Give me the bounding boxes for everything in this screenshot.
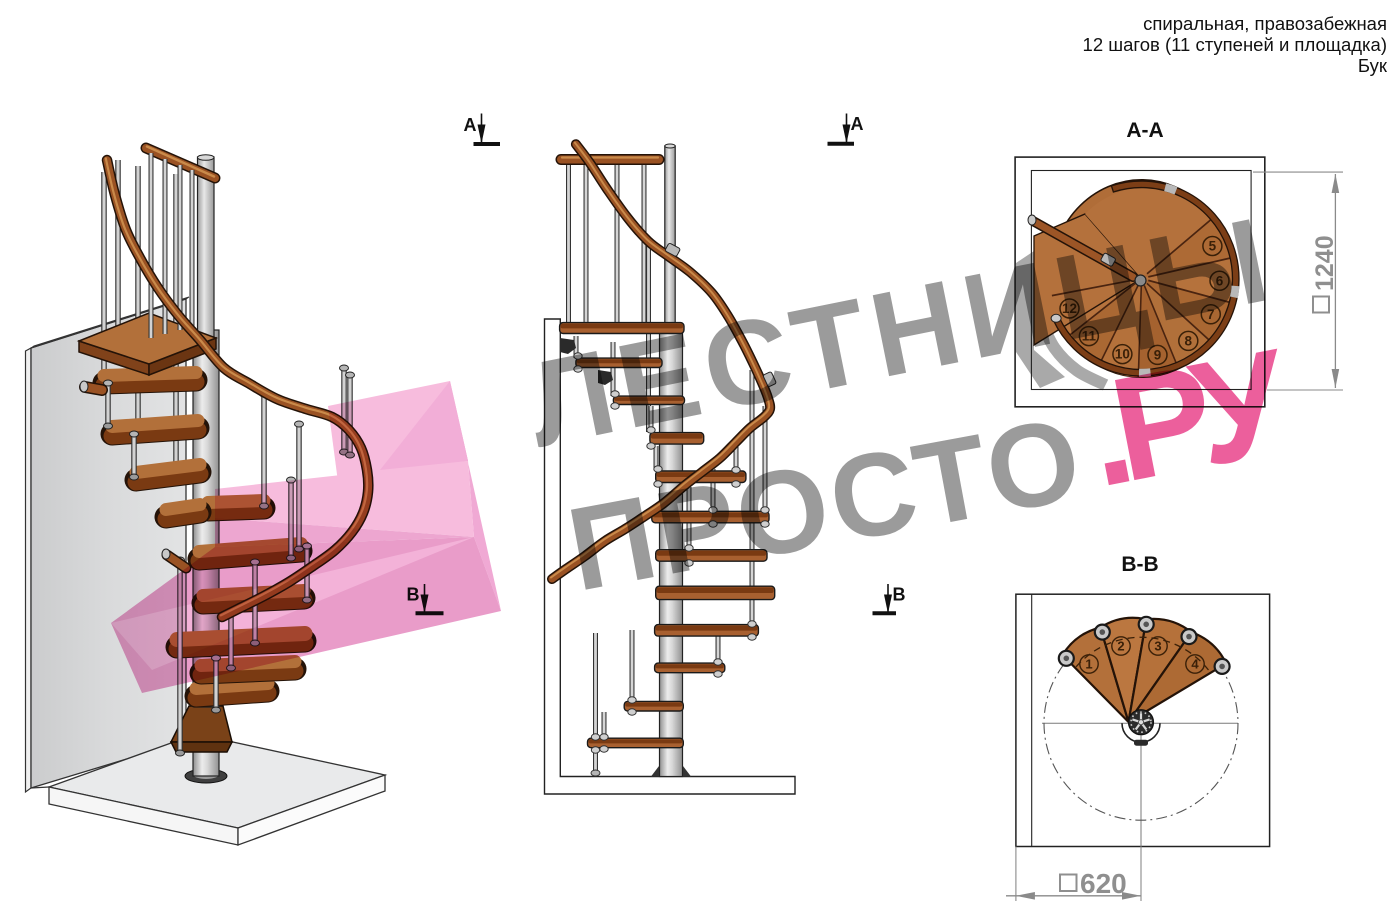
svg-text:4: 4 [1191, 657, 1199, 672]
svg-text:12 шагов (11 ступеней и площад: 12 шагов (11 ступеней и площадка) [1083, 34, 1387, 55]
svg-text:А-А: А-А [1126, 119, 1163, 142]
svg-text:В: В [893, 585, 906, 605]
svg-text:2: 2 [1117, 639, 1124, 654]
svg-text:Бук: Бук [1358, 55, 1388, 76]
svg-text:3: 3 [1154, 639, 1161, 654]
svg-text:А: А [851, 114, 864, 134]
svg-text:спиральная, правозабежная: спиральная, правозабежная [1143, 13, 1387, 34]
svg-text:А: А [464, 115, 477, 135]
svg-text:1240: 1240 [1311, 235, 1339, 291]
svg-text:В-В: В-В [1121, 553, 1158, 576]
svg-text:620: 620 [1080, 868, 1127, 899]
svg-text:1: 1 [1085, 657, 1092, 672]
